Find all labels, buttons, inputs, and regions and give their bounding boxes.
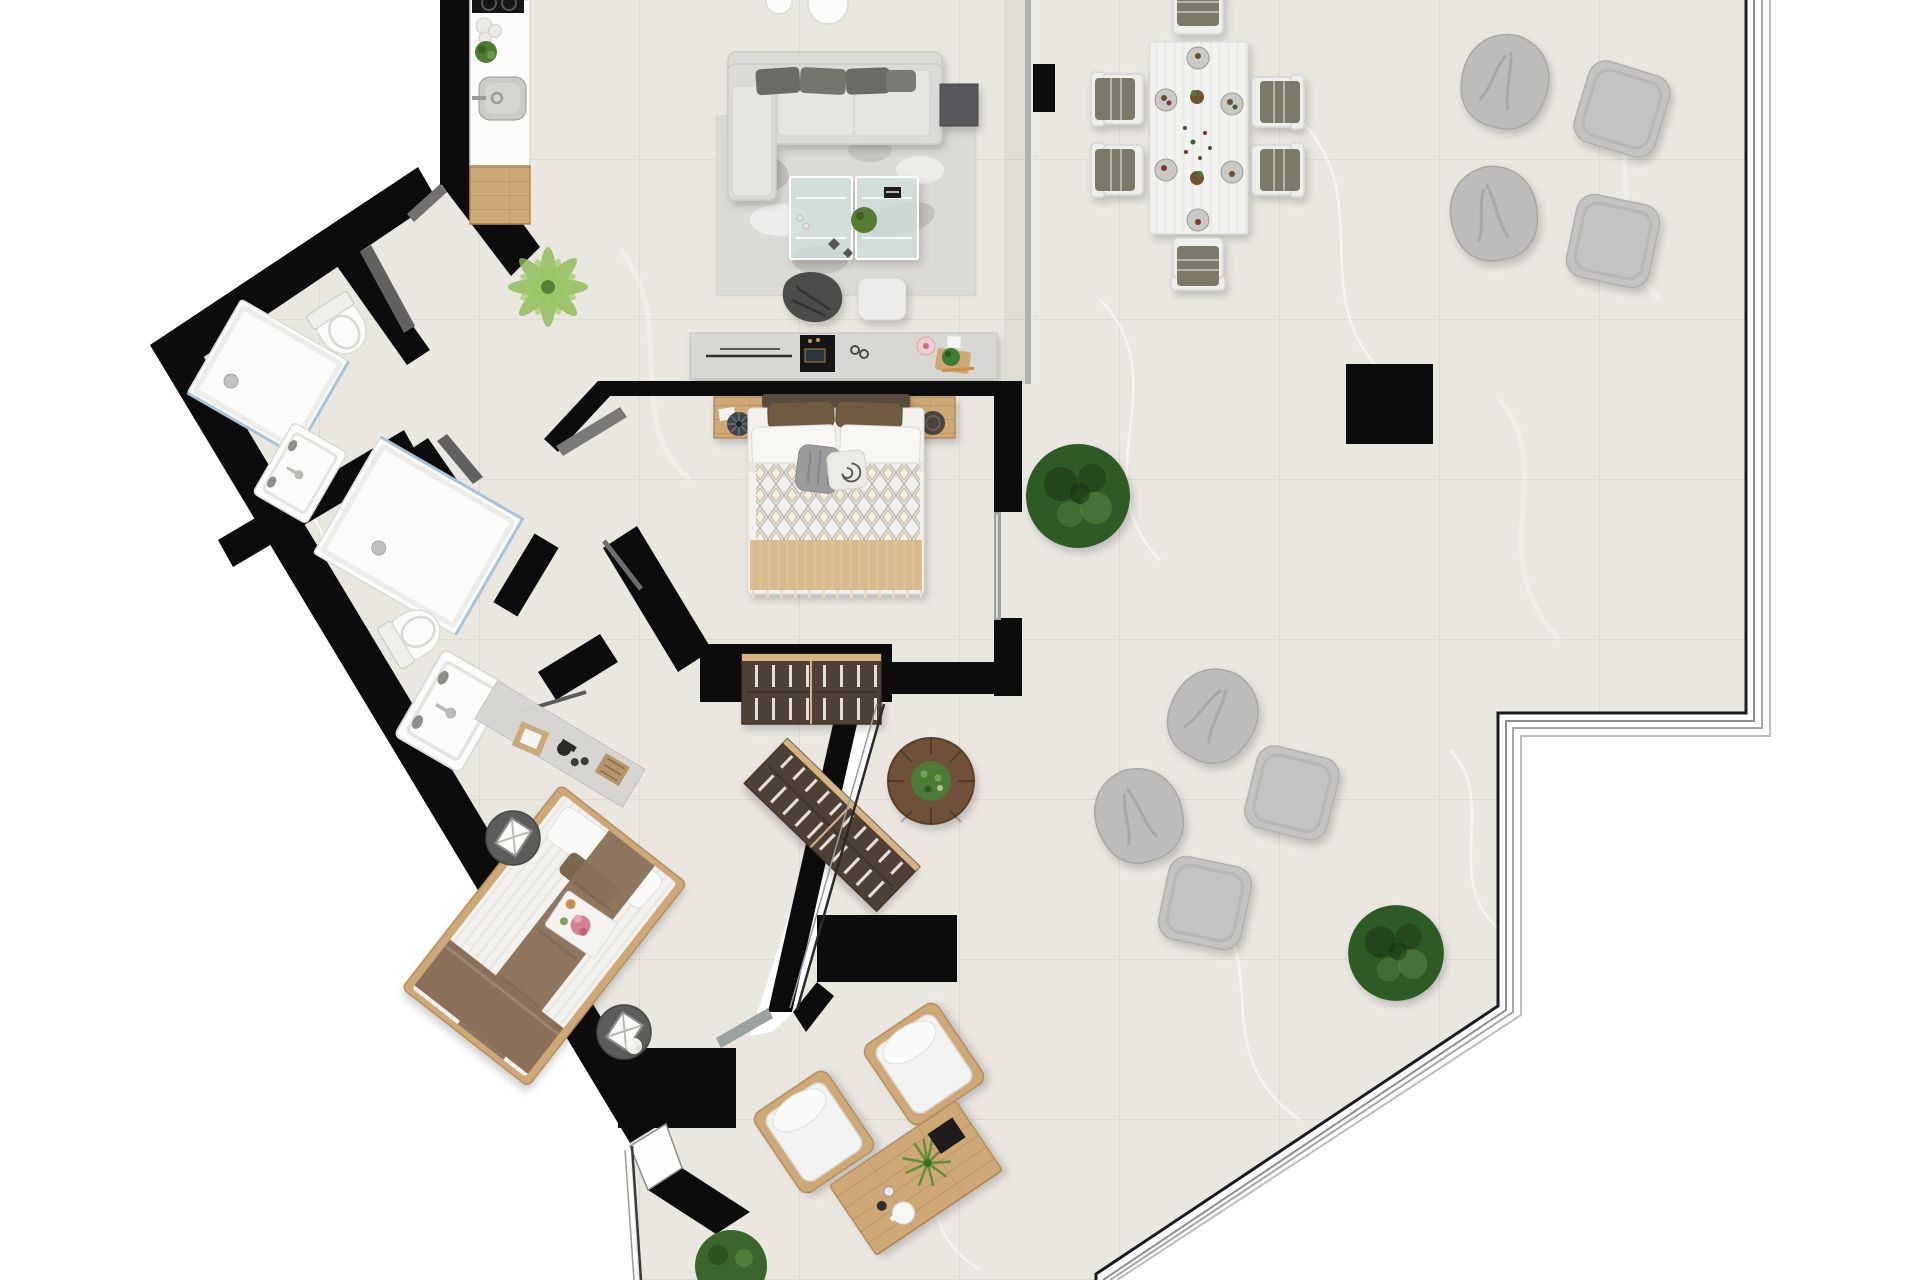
- sofa-pillow: [886, 70, 916, 92]
- floor-plan-stage: [0, 0, 1920, 1280]
- palm-plant: [508, 247, 588, 327]
- dining-chair-left-2: [1091, 143, 1143, 197]
- herb-plant: [475, 41, 497, 63]
- kitchen-sink: [472, 77, 526, 120]
- glass-wall-shadow: [1004, 0, 1025, 384]
- bed-1: [748, 394, 924, 594]
- room-kitchen: [470, 0, 530, 224]
- white-box: [947, 336, 961, 348]
- spiral-pillow: [826, 449, 868, 491]
- wall-terrace-block: [817, 915, 957, 982]
- tree-2: [1348, 905, 1444, 1001]
- floor-plan-canvas: [0, 0, 1920, 1280]
- white-pouf: [858, 278, 906, 320]
- coffee-table-plant: [851, 207, 877, 233]
- sofa-pillow: [755, 66, 801, 95]
- square-pouf-4: [1155, 853, 1255, 953]
- wall-bedroom2-se-block: [618, 1048, 736, 1128]
- column-terrace: [1346, 364, 1433, 444]
- worktop-grain: [470, 166, 530, 224]
- dining-chair-right-1: [1252, 75, 1304, 129]
- square-pouf-2: [1563, 191, 1663, 291]
- wall-bedroom1-north: [598, 381, 998, 396]
- round-side-table-upper: [486, 811, 540, 865]
- sideboard-plant: [942, 348, 960, 366]
- round-planter: [888, 738, 974, 824]
- sofa-side-table: [940, 84, 978, 126]
- tree-1: [1026, 444, 1130, 548]
- wall-bedroom1-east-upper: [994, 381, 1022, 512]
- glass-wall-highlight: [1031, 0, 1033, 384]
- dining-chair-left-1: [1091, 72, 1143, 126]
- dining-chair-top: [1171, 0, 1225, 34]
- sofa-pillow: [846, 67, 891, 95]
- glass-wall: [1025, 0, 1031, 384]
- wall-bedroom1-south: [876, 662, 1022, 694]
- sideboard: [690, 333, 997, 379]
- cooktop: [472, 0, 524, 13]
- wardrobe-1: [742, 654, 881, 724]
- dining-chair-right-2: [1252, 143, 1304, 197]
- dining-chair-bottom: [1171, 238, 1225, 290]
- round-side-table-lower: [597, 1005, 651, 1059]
- sofa-pillow: [799, 67, 846, 95]
